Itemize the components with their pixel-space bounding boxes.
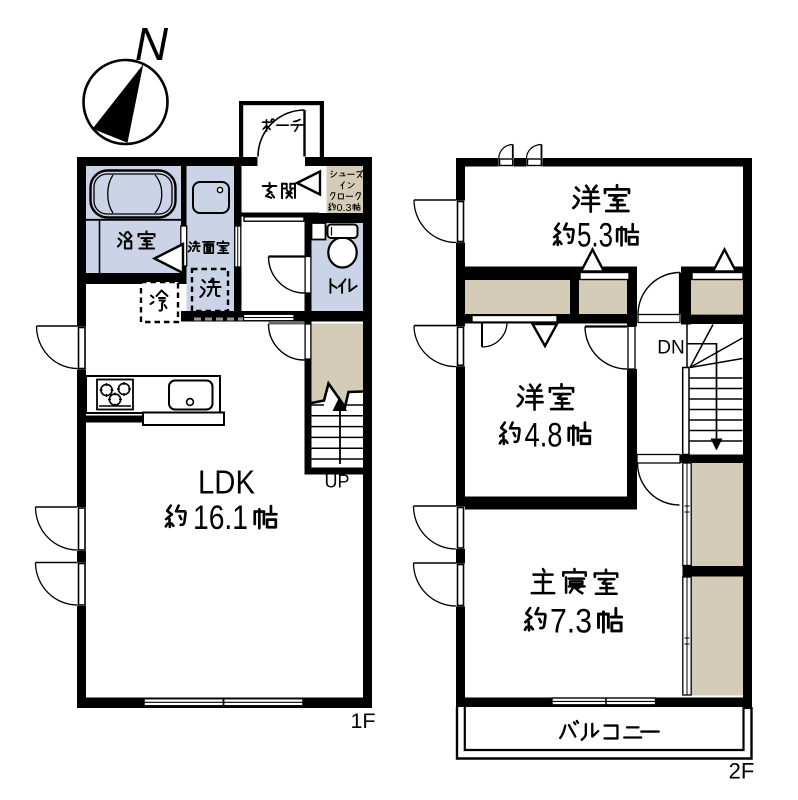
svg-text:2F: 2F — [729, 758, 755, 783]
svg-text:4.8: 4.8 — [525, 417, 563, 455]
svg-text:DN: DN — [657, 338, 684, 359]
svg-text:LDK: LDK — [198, 464, 255, 501]
svg-text:1F: 1F — [350, 709, 375, 733]
svg-text:5.3: 5.3 — [577, 217, 613, 255]
svg-text:0.3: 0.3 — [337, 202, 352, 214]
svg-text:7.3: 7.3 — [550, 603, 592, 641]
svg-text:N: N — [135, 18, 169, 70]
svg-text:UP: UP — [324, 472, 349, 492]
svg-text:16.1: 16.1 — [193, 499, 248, 537]
